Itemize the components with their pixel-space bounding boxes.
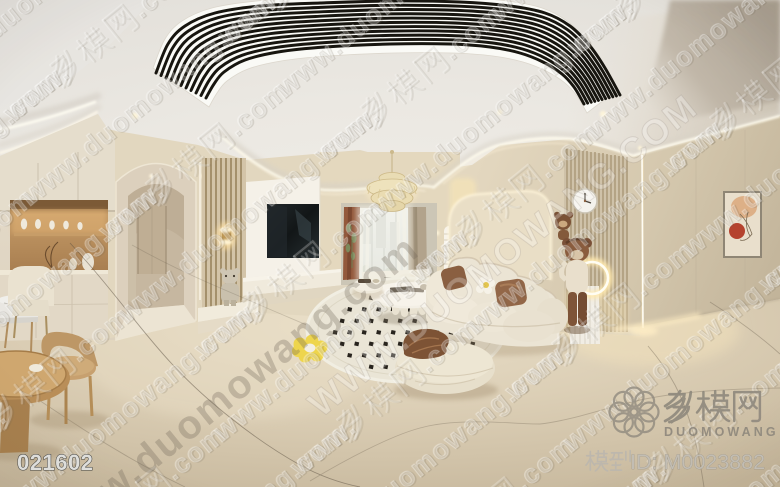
svg-text:021602: 021602 — [17, 450, 93, 475]
svg-text:DUOMOWANG: DUOMOWANG — [664, 425, 779, 439]
svg-text:ID: M0023882: ID: M0023882 — [630, 450, 765, 474]
